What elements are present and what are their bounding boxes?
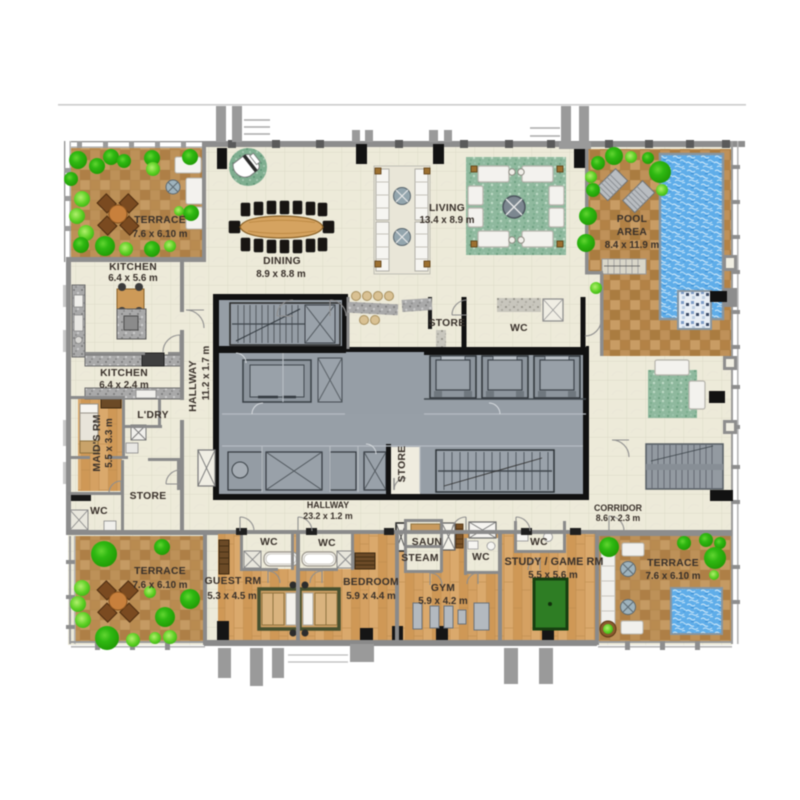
svg-text:KITCHEN: KITCHEN bbox=[109, 262, 157, 273]
svg-text:8.6 x 2.3 m: 8.6 x 2.3 m bbox=[596, 513, 641, 523]
svg-text:7.6 x 6.10 m: 7.6 x 6.10 m bbox=[132, 580, 187, 591]
svg-text:WC: WC bbox=[318, 538, 336, 549]
svg-text:SAUN: SAUN bbox=[412, 537, 442, 548]
svg-text:AREA: AREA bbox=[617, 227, 648, 238]
svg-text:CORRIDOR: CORRIDOR bbox=[594, 503, 643, 513]
svg-text:5.9 x 4.4 m: 5.9 x 4.4 m bbox=[346, 591, 396, 602]
svg-text:WC: WC bbox=[260, 537, 278, 548]
svg-text:GYM: GYM bbox=[431, 583, 455, 594]
svg-text:DINING: DINING bbox=[263, 256, 301, 267]
svg-text:WC: WC bbox=[530, 537, 548, 548]
svg-text:11.2 x 1.7 m: 11.2 x 1.7 m bbox=[201, 345, 212, 400]
svg-text:WC: WC bbox=[472, 552, 490, 563]
svg-text:5.5 x 3.3 m: 5.5 x 3.3 m bbox=[104, 418, 115, 468]
svg-text:STORE: STORE bbox=[130, 491, 167, 502]
svg-text:13.4 x 8.9 m: 13.4 x 8.9 m bbox=[419, 215, 474, 226]
svg-text:LIVING: LIVING bbox=[429, 203, 465, 214]
svg-text:TERRACE: TERRACE bbox=[134, 215, 186, 226]
svg-text:5.9 x 4.2 m: 5.9 x 4.2 m bbox=[418, 596, 468, 607]
svg-text:HALLWAY: HALLWAY bbox=[188, 360, 199, 412]
svg-text:7.6 x 6.10 m: 7.6 x 6.10 m bbox=[645, 571, 700, 582]
svg-text:23.2 x 1.2 m: 23.2 x 1.2 m bbox=[303, 511, 353, 521]
svg-text:L'DRY: L'DRY bbox=[137, 410, 169, 421]
svg-text:5.5 x 5.6 m: 5.5 x 5.6 m bbox=[528, 570, 578, 581]
svg-text:6.4 x 2.4 m: 6.4 x 2.4 m bbox=[99, 380, 149, 391]
svg-text:8.9 x 8.8 m: 8.9 x 8.8 m bbox=[256, 269, 306, 280]
svg-text:STUDY / GAME RM: STUDY / GAME RM bbox=[504, 556, 603, 568]
svg-text:6.4 x 5.6 m: 6.4 x 5.6 m bbox=[108, 273, 158, 284]
svg-text:KITCHEN: KITCHEN bbox=[100, 368, 148, 379]
svg-text:TERRACE: TERRACE bbox=[134, 566, 186, 577]
svg-text:WC: WC bbox=[510, 323, 528, 334]
svg-text:HALLWAY: HALLWAY bbox=[307, 500, 349, 510]
svg-text:5.3 x 4.5 m: 5.3 x 4.5 m bbox=[207, 591, 257, 602]
svg-text:STORE: STORE bbox=[429, 318, 466, 329]
svg-text:BEDROOM: BEDROOM bbox=[343, 577, 399, 588]
svg-text:STORE: STORE bbox=[397, 446, 408, 483]
svg-text:TERRACE: TERRACE bbox=[647, 558, 699, 569]
svg-text:POOL: POOL bbox=[617, 214, 647, 225]
svg-text:MAID'S RM: MAID'S RM bbox=[92, 414, 103, 471]
svg-text:7.6 x 6.10 m: 7.6 x 6.10 m bbox=[132, 229, 187, 240]
svg-text:8.4 x 11.9 m: 8.4 x 11.9 m bbox=[605, 240, 660, 251]
svg-text:GUEST RM: GUEST RM bbox=[205, 576, 262, 587]
svg-text:STEAM: STEAM bbox=[401, 553, 439, 564]
svg-text:WC: WC bbox=[90, 506, 108, 517]
